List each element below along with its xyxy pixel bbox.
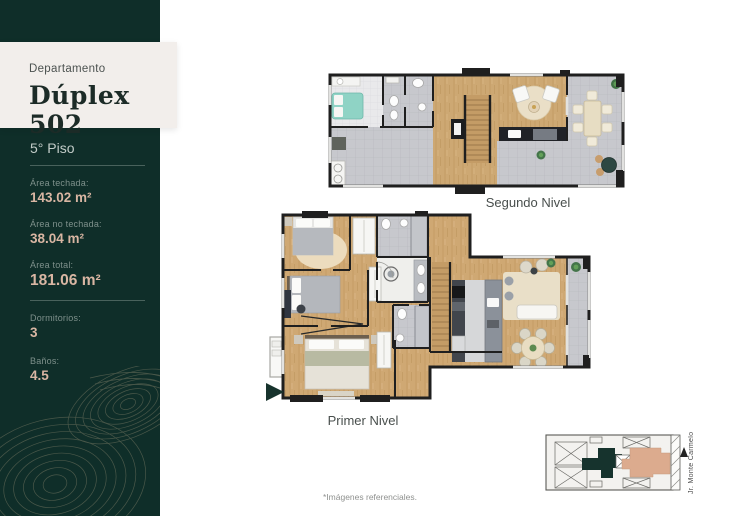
laundry-terrace-items: [331, 137, 346, 185]
floorplan-brochure-page: 5° Piso Área techada: 143.02 m² Área no …: [0, 0, 730, 516]
area-techada-value: 143.02 m²: [30, 190, 148, 205]
segundo-nivel-label: Segundo Nivel: [448, 195, 608, 210]
area-total-label: Área total:: [30, 260, 148, 270]
dormitorios-label: Dormitorios:: [30, 313, 148, 323]
primer-nivel-floorplan: [263, 210, 593, 408]
street-strip: [671, 435, 680, 490]
stairs: [432, 262, 450, 352]
sofa: [517, 305, 557, 319]
master-bedroom: [294, 335, 380, 396]
topographic-contour-decoration: [0, 366, 160, 516]
divider: [30, 300, 145, 301]
dormitorios-value: 3: [30, 325, 148, 340]
site-location-map: [543, 430, 693, 494]
kitchen-floor: [465, 280, 486, 362]
area-total-value: 181.06 m²: [30, 272, 148, 290]
floor-label: 5° Piso: [30, 140, 148, 156]
bedroom-2: [284, 276, 340, 318]
primer-nivel-label: Primer Nivel: [303, 413, 423, 428]
disclaimer-text: *Imágenes referenciales.: [290, 492, 450, 502]
entrance-arrow-icon: [266, 383, 284, 401]
banos-value: 4.5: [30, 368, 148, 383]
area-techada-label: Área techada:: [30, 178, 148, 188]
street-name-label: Jr. Monte Carmelo: [688, 436, 700, 494]
area-no-techada-value: 38.04 m²: [30, 231, 148, 246]
area-no-techada-label: Área no techada:: [30, 219, 148, 229]
unit-name: Dúplex 502: [29, 81, 177, 139]
spa-bedroom-furniture: [332, 77, 363, 119]
side-balcony: [270, 337, 283, 377]
kitchenette-counter: [499, 127, 567, 141]
segundo-nivel-floorplan: [328, 67, 626, 195]
terrace-left-floor: [330, 127, 433, 186]
unit-details: 5° Piso Área techada: 143.02 m² Área no …: [30, 140, 148, 383]
banos-label: Baños:: [30, 356, 148, 366]
divider: [30, 165, 145, 166]
balcony-floor: [567, 257, 589, 367]
unit-category: Departamento: [29, 63, 177, 75]
street-direction-arrow-icon: [680, 447, 688, 457]
unit-title-card: Departamento Dúplex 502: [0, 42, 177, 128]
